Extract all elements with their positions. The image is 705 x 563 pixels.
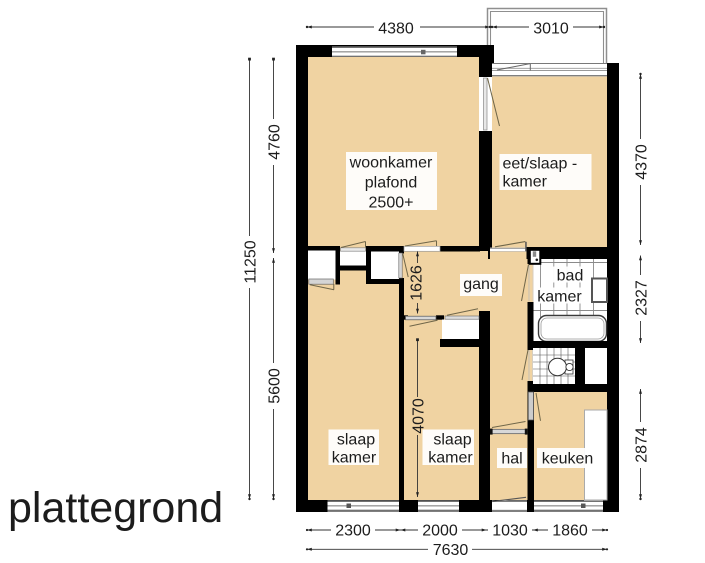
svg-text:slaap: slaap (337, 431, 375, 448)
svg-text:1030: 1030 (492, 523, 528, 540)
svg-text:slaap: slaap (433, 431, 471, 448)
svg-text:kamer: kamer (428, 450, 473, 467)
svg-text:kamer: kamer (503, 174, 548, 191)
svg-text:7630: 7630 (433, 542, 469, 559)
svg-text:kamer: kamer (332, 450, 377, 467)
svg-text:hal: hal (501, 451, 522, 468)
svg-text:1860: 1860 (552, 523, 588, 540)
svg-text:2000: 2000 (422, 523, 458, 540)
svg-text:4380: 4380 (378, 21, 414, 38)
svg-text:4070: 4070 (410, 398, 427, 434)
svg-text:woonkamer: woonkamer (349, 155, 433, 172)
svg-text:2327: 2327 (633, 280, 650, 316)
svg-text:4370: 4370 (633, 144, 650, 180)
svg-text:plafond: plafond (365, 175, 418, 192)
svg-text:4760: 4760 (266, 124, 283, 160)
svg-text:kamer: kamer (537, 289, 582, 306)
svg-text:11250: 11250 (242, 240, 259, 283)
svg-text:2300: 2300 (335, 523, 371, 540)
svg-text:1626: 1626 (409, 265, 426, 301)
svg-text:gang: gang (463, 276, 499, 293)
svg-text:bad: bad (557, 268, 584, 285)
svg-text:plattegrond: plattegrond (8, 484, 223, 532)
svg-text:3010: 3010 (533, 21, 569, 38)
svg-text:eet/slaap -: eet/slaap - (503, 155, 578, 172)
svg-text:5600: 5600 (266, 368, 283, 404)
svg-text:keuken: keuken (542, 451, 594, 468)
svg-text:2500+: 2500+ (369, 195, 414, 212)
svg-text:2874: 2874 (633, 427, 650, 463)
